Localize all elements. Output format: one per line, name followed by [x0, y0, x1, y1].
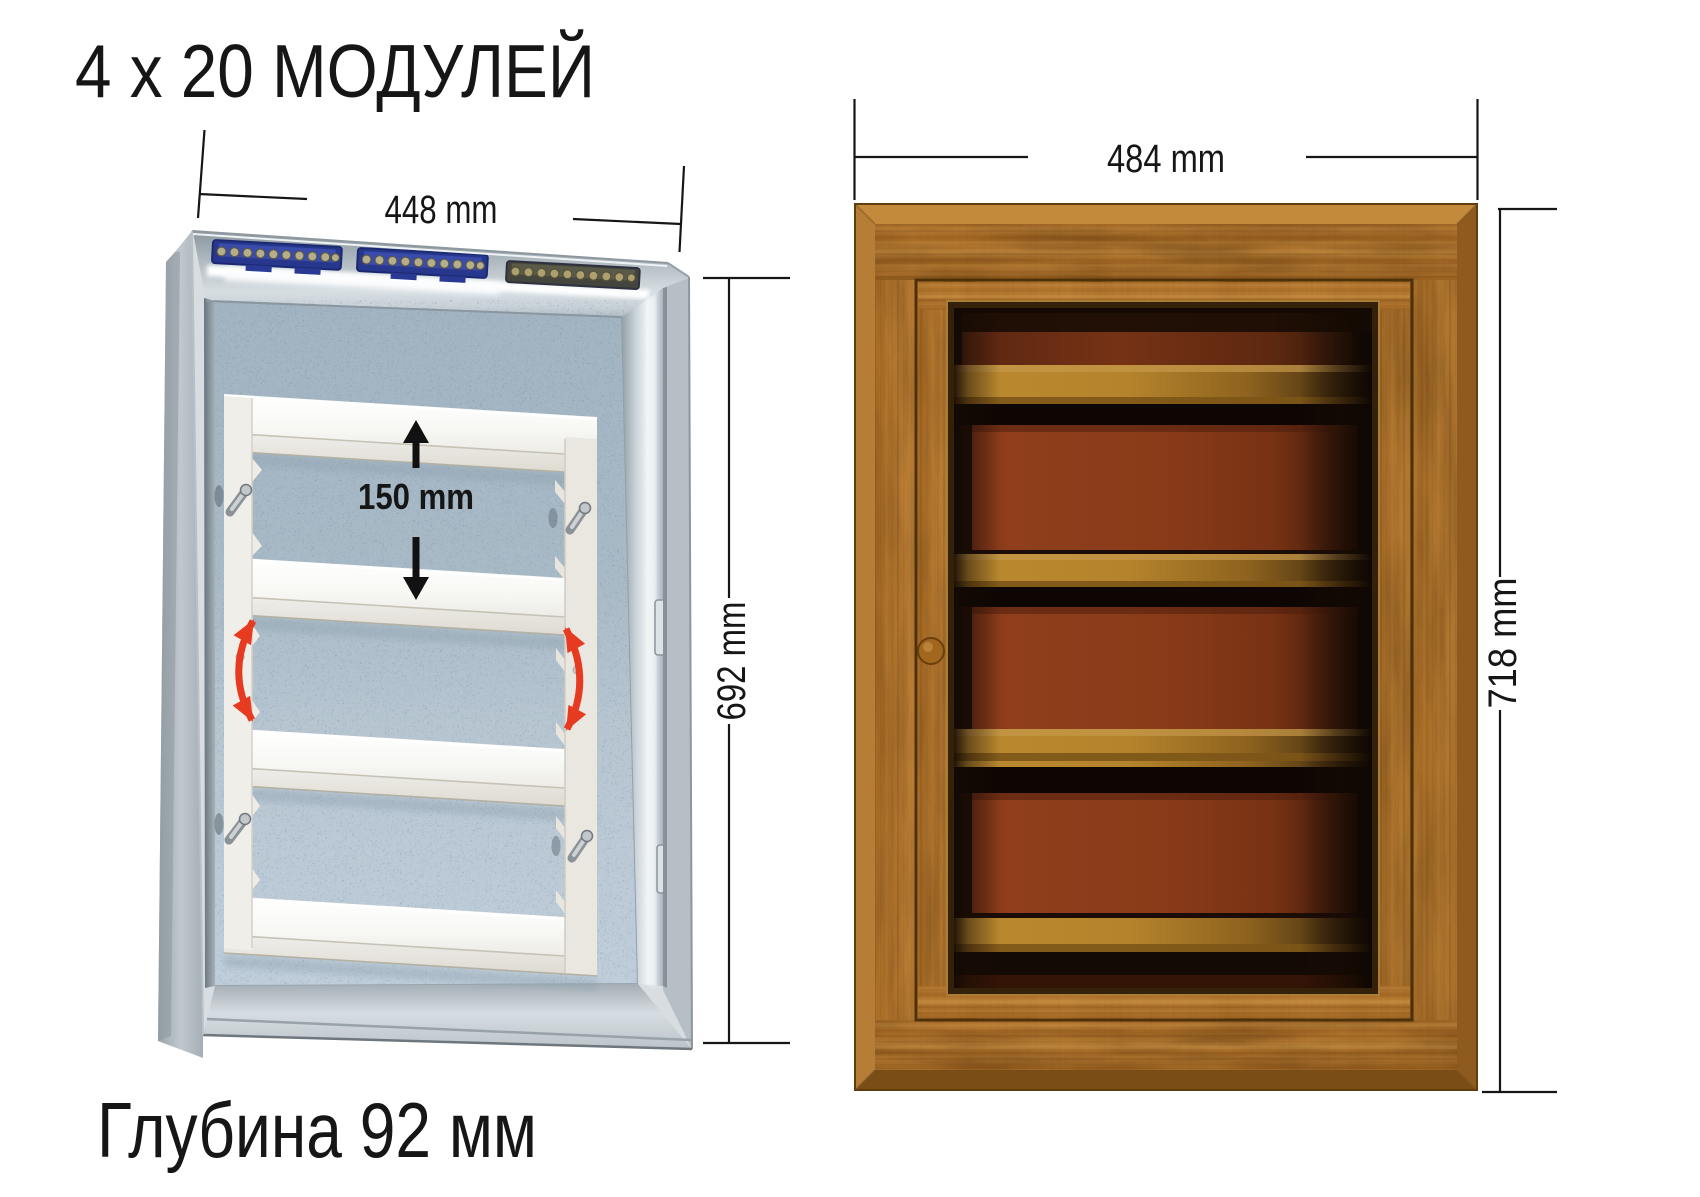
- svg-text:448 mm: 448 mm: [385, 188, 498, 232]
- svg-text:4 x 20 МОДУЛЕЙ: 4 x 20 МОДУЛЕЙ: [75, 29, 595, 113]
- svg-text:692 mm: 692 mm: [710, 602, 754, 721]
- svg-text:Глубина 92 мм: Глубина 92 мм: [97, 1086, 537, 1174]
- svg-text:718 mm: 718 mm: [1481, 578, 1525, 709]
- svg-text:484 mm: 484 mm: [1107, 137, 1225, 181]
- svg-text:150 mm: 150 mm: [358, 476, 474, 517]
